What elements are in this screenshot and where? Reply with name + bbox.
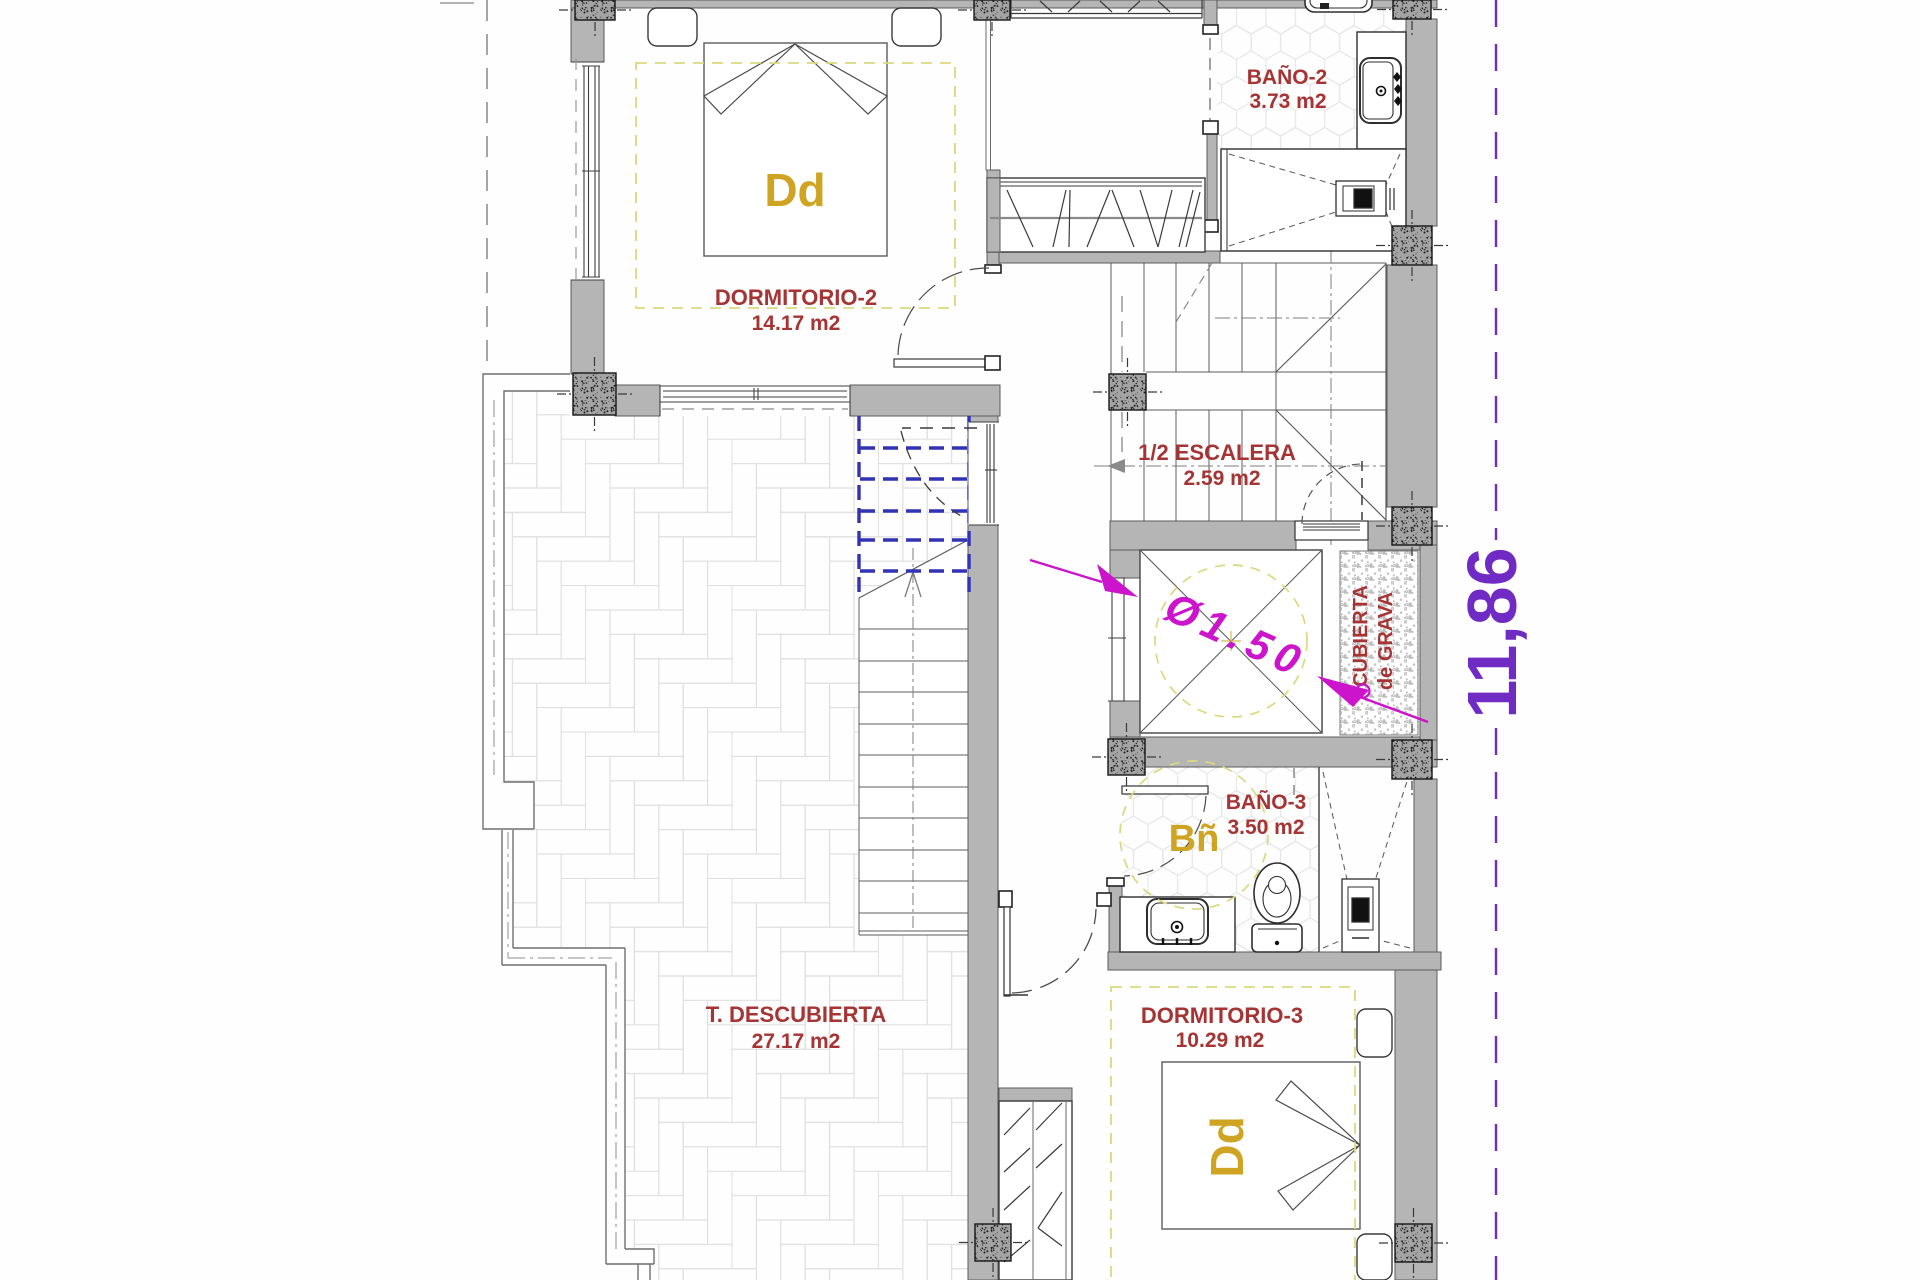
svg-text:14.17 m2: 14.17 m2 [752,312,841,335]
svg-text:CUBIERTA: CUBIERTA [1350,585,1372,687]
svg-text:Dd: Dd [1201,1116,1253,1177]
svg-text:BAÑO-2: BAÑO-2 [1247,66,1328,89]
svg-text:BAÑO-3: BAÑO-3 [1226,791,1307,814]
svg-text:3.50 m2: 3.50 m2 [1227,816,1304,839]
svg-text:3.73 m2: 3.73 m2 [1249,90,1326,113]
svg-text:11,86: 11,86 [1453,547,1531,718]
svg-text:Dd: Dd [764,164,825,216]
svg-text:1/2 ESCALERA: 1/2 ESCALERA [1138,440,1296,465]
svg-text:27.17 m2: 27.17 m2 [752,1030,841,1053]
svg-text:10.29 m2: 10.29 m2 [1176,1029,1265,1052]
svg-text:Bñ: Bñ [1169,818,1220,860]
svg-text:T. DESCUBIERTA: T. DESCUBIERTA [706,1002,887,1027]
svg-text:DORMITORIO-2: DORMITORIO-2 [715,285,877,310]
svg-text:de GRAVA: de GRAVA [1375,592,1397,690]
svg-text:DORMITORIO-3: DORMITORIO-3 [1141,1003,1303,1028]
svg-text:2.59 m2: 2.59 m2 [1183,467,1260,490]
